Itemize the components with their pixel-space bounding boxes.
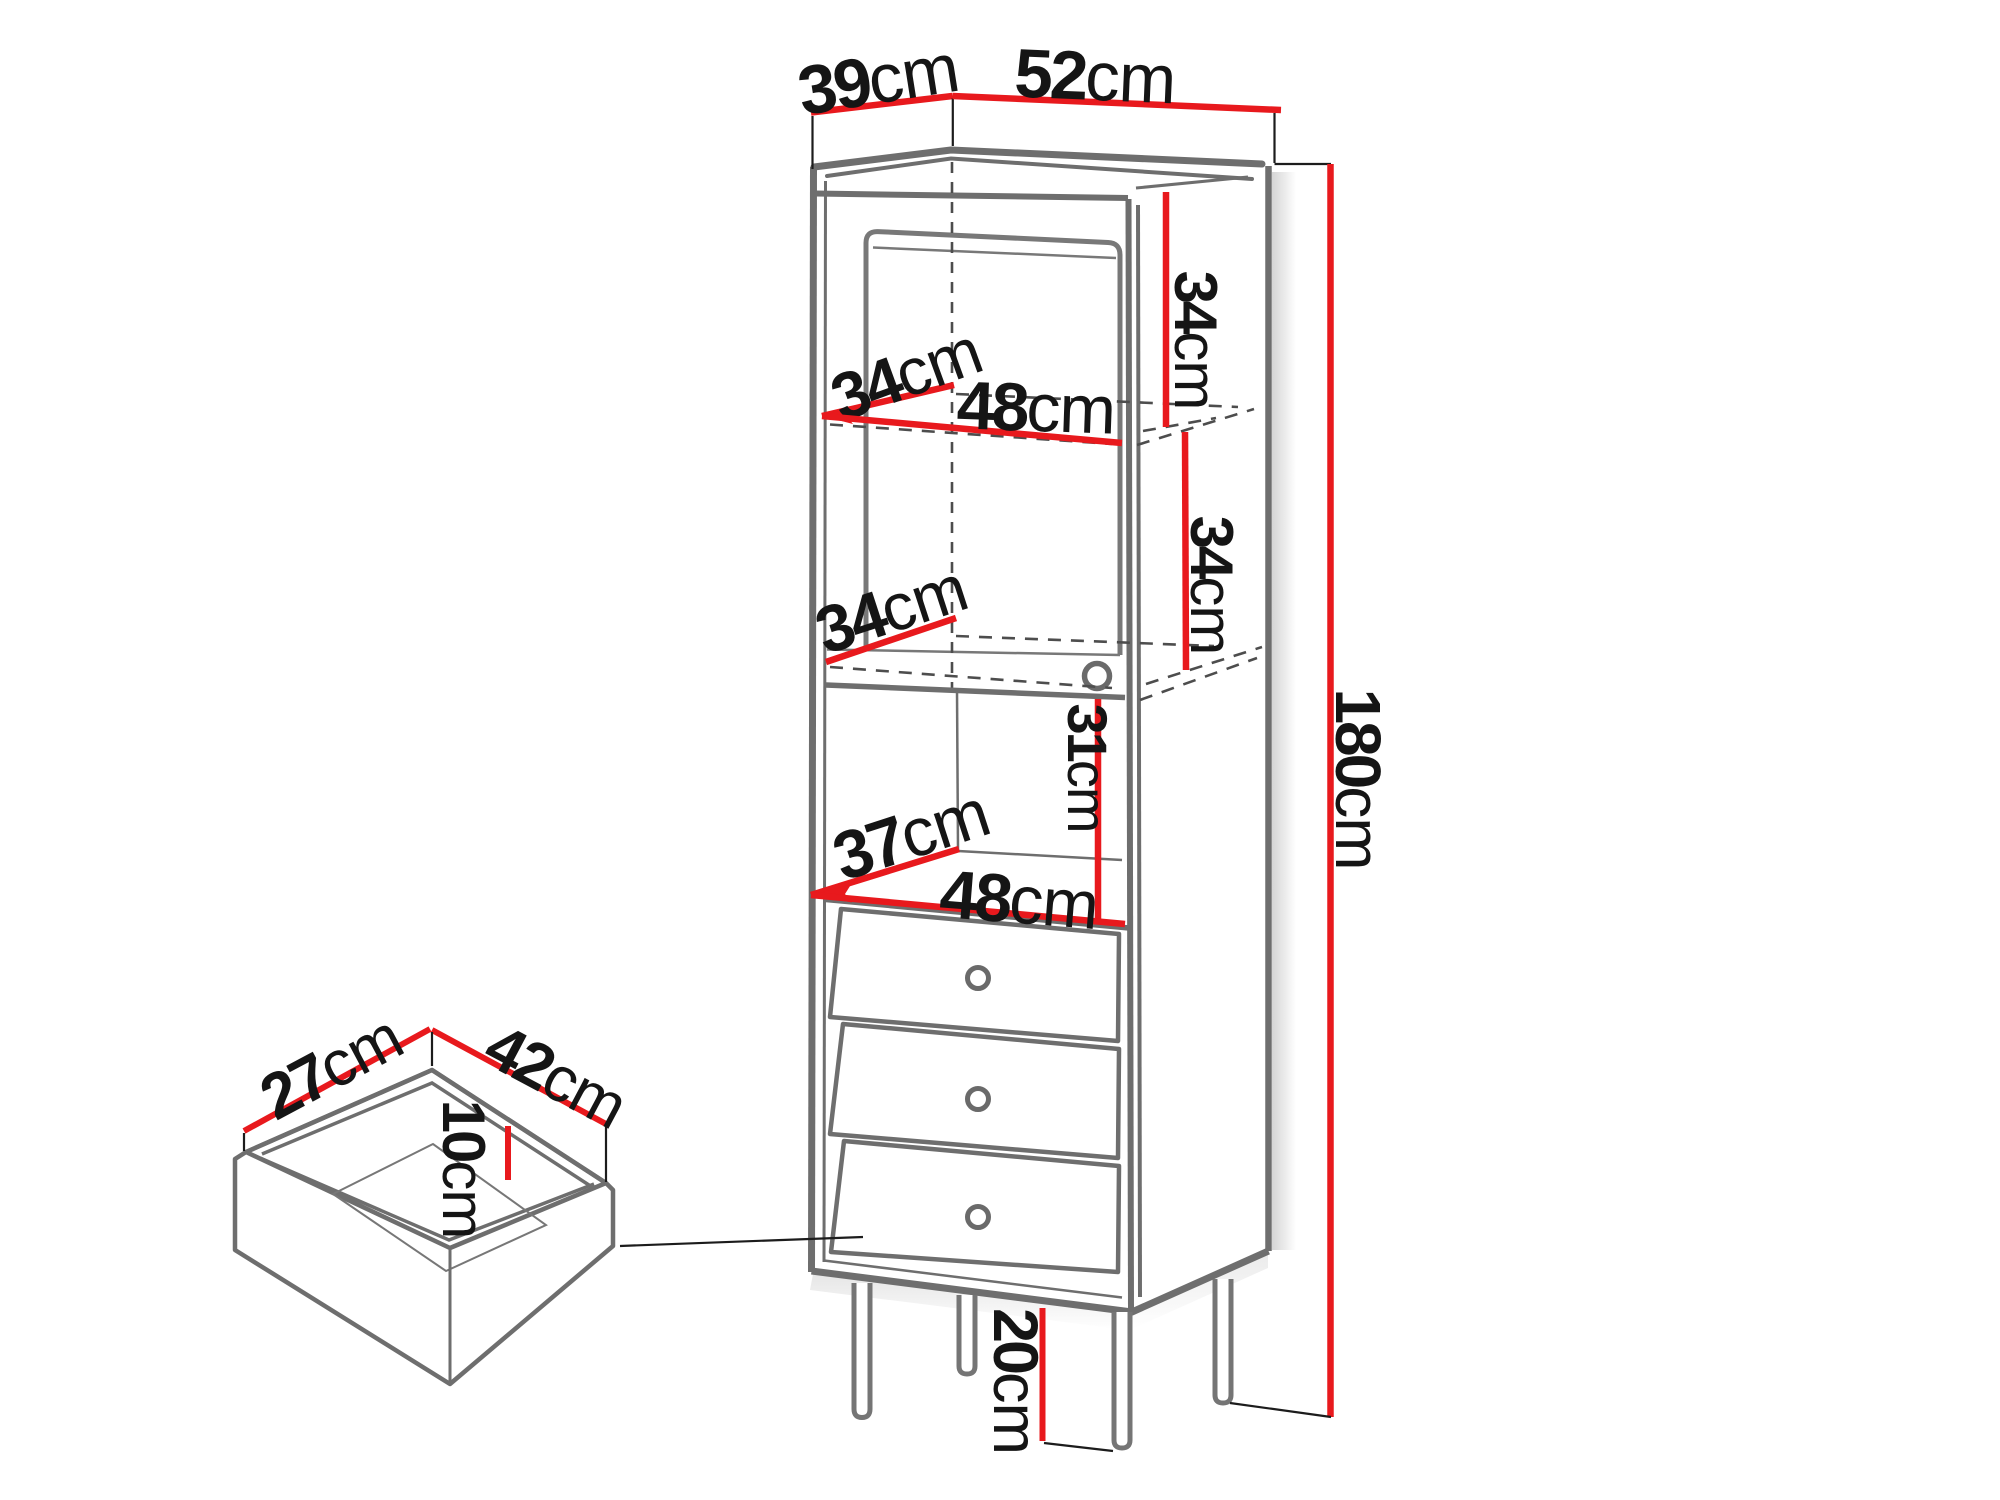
svg-text:31cm: 31cm bbox=[1057, 704, 1120, 833]
svg-text:48cm: 48cm bbox=[956, 367, 1117, 448]
svg-text:34cm: 34cm bbox=[1179, 516, 1246, 655]
svg-text:39cm: 39cm bbox=[793, 28, 964, 129]
svg-text:34cm: 34cm bbox=[1163, 271, 1230, 410]
svg-text:20cm: 20cm bbox=[980, 1308, 1050, 1454]
svg-text:10cm: 10cm bbox=[431, 1100, 498, 1239]
svg-text:48cm: 48cm bbox=[937, 856, 1101, 944]
svg-text:180cm: 180cm bbox=[1322, 688, 1394, 869]
svg-text:52cm: 52cm bbox=[1013, 34, 1177, 118]
